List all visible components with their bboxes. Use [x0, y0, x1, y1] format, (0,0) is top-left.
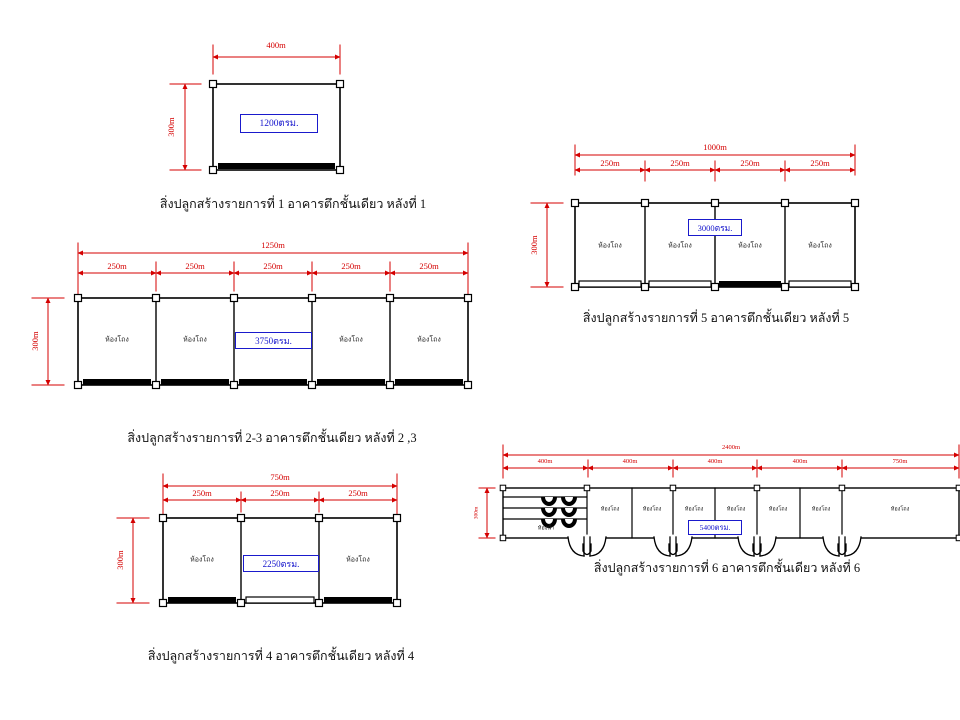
b23-segment-label: 250m	[107, 262, 126, 271]
b5-area-box: 3000ตรม.	[688, 219, 742, 236]
b4-area-box: 2250ตรม.	[243, 555, 319, 572]
b5-total-dimension-label: 1000m	[703, 143, 727, 152]
b23-room-label: ห้องโถง	[105, 337, 129, 344]
b6-room-label: ห้องโถง	[891, 507, 910, 513]
b4-segment-label: 250m	[192, 489, 211, 498]
b5-room-label: ห้องโถง	[668, 243, 692, 250]
toilet-fixture-icons	[541, 497, 577, 528]
b6-area-box: 5400ตรม.	[688, 520, 742, 535]
b4-height-dimension-label: 300m	[116, 550, 125, 569]
b23-room-label: ห้องโถง	[417, 337, 441, 344]
b1-width-dimension-label: 400m	[266, 41, 285, 50]
b6-segment-label: 400m	[538, 459, 553, 466]
b6-segment-label: 400m	[708, 459, 723, 466]
b4-room-label: ห้องโถง	[190, 557, 214, 564]
building-2-3-linework	[32, 243, 472, 389]
b4-segment-label: 250m	[348, 489, 367, 498]
b6-total-dimension-label: 2400m	[722, 445, 740, 452]
b4-segment-label: 250m	[270, 489, 289, 498]
b5-segment-label: 250m	[740, 159, 759, 168]
b6-height-dimension-label: 300m	[474, 507, 480, 520]
b23-caption: สิ่งปลูกสร้างรายการที่ 2-3 อาคารตึกชั้นเ…	[127, 432, 416, 445]
b5-caption: สิ่งปลูกสร้างรายการที่ 5 อาคารตึกชั้นเดี…	[583, 312, 849, 325]
b5-segment-label: 250m	[810, 159, 829, 168]
b6-area-label: 5400ตรม.	[700, 522, 731, 534]
drawing-layer	[0, 0, 960, 720]
b1-height-dimension-label: 300m	[167, 117, 176, 136]
b4-room-label: ห้องโถง	[346, 557, 370, 564]
b6-room-label: ห้องโถง	[727, 507, 746, 513]
b5-segment-label: 250m	[670, 159, 689, 168]
b1-area-label: 1200ตรม.	[260, 116, 299, 131]
b6-room-label: ห้องโถง	[643, 507, 662, 513]
b23-room-label: ห้องโถง	[183, 337, 207, 344]
building-1-linework	[170, 45, 344, 174]
b6-room-label: ห้องโถง	[685, 507, 704, 513]
b6-room-label: ห้องโถง	[769, 507, 788, 513]
b23-segment-label: 250m	[341, 262, 360, 271]
b6-segment-label: 750m	[893, 459, 908, 466]
b4-area-label: 2250ตรม.	[263, 557, 300, 571]
b1-area-box: 1200ตรม.	[240, 114, 318, 133]
b6-segment-label: 400m	[793, 459, 808, 466]
b23-area-label: 3750ตรม.	[255, 334, 292, 348]
b23-total-dimension-label: 1250m	[261, 241, 285, 250]
b6-bathroom-label: ห้องน้ำ	[538, 526, 554, 532]
b4-total-dimension-label: 750m	[270, 473, 289, 482]
b1-caption: สิ่งปลูกสร้างรายการที่ 1 อาคารตึกชั้นเดี…	[160, 198, 426, 211]
b23-segment-label: 250m	[419, 262, 438, 271]
b23-height-dimension-label: 300m	[31, 331, 40, 350]
b5-room-label: ห้องโถง	[738, 243, 762, 250]
b23-room-label: ห้องโถง	[339, 337, 363, 344]
b5-room-label: ห้องโถง	[808, 243, 832, 250]
b6-segment-label: 400m	[623, 459, 638, 466]
b5-room-label: ห้องโถง	[598, 243, 622, 250]
b5-height-dimension-label: 300m	[530, 235, 539, 254]
b5-segment-label: 250m	[600, 159, 619, 168]
b6-room-label: ห้องโถง	[812, 507, 831, 513]
b5-area-label: 3000ตรม.	[698, 221, 733, 235]
b4-caption: สิ่งปลูกสร้างรายการที่ 4 อาคารตึกชั้นเดี…	[148, 650, 414, 663]
b23-segment-label: 250m	[263, 262, 282, 271]
site-plan-canvas: 400m 300m 1200ตรม. สิ่งปลูกสร้างรายการที…	[0, 0, 960, 720]
b23-segment-label: 250m	[185, 262, 204, 271]
b6-room-label: ห้องโถง	[601, 507, 620, 513]
b23-area-box: 3750ตรม.	[235, 332, 312, 349]
b6-caption: สิ่งปลูกสร้างรายการที่ 6 อาคารตึกชั้นเดี…	[594, 562, 860, 575]
